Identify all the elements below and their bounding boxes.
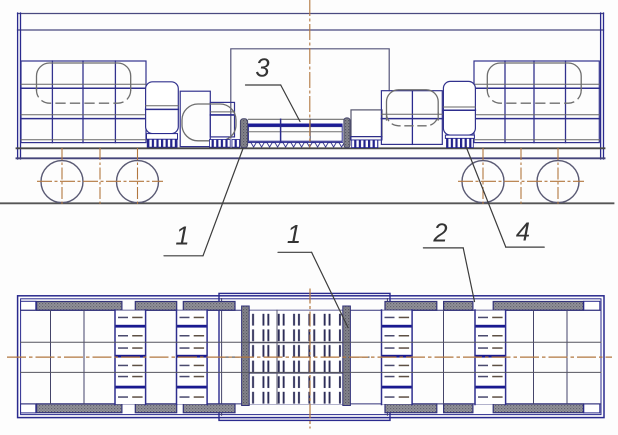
svg-text:3: 3 [255,55,269,83]
svg-text:1: 1 [287,221,301,249]
svg-text:4: 4 [516,219,530,247]
svg-text:2: 2 [432,220,447,248]
svg-text:1: 1 [175,223,189,251]
